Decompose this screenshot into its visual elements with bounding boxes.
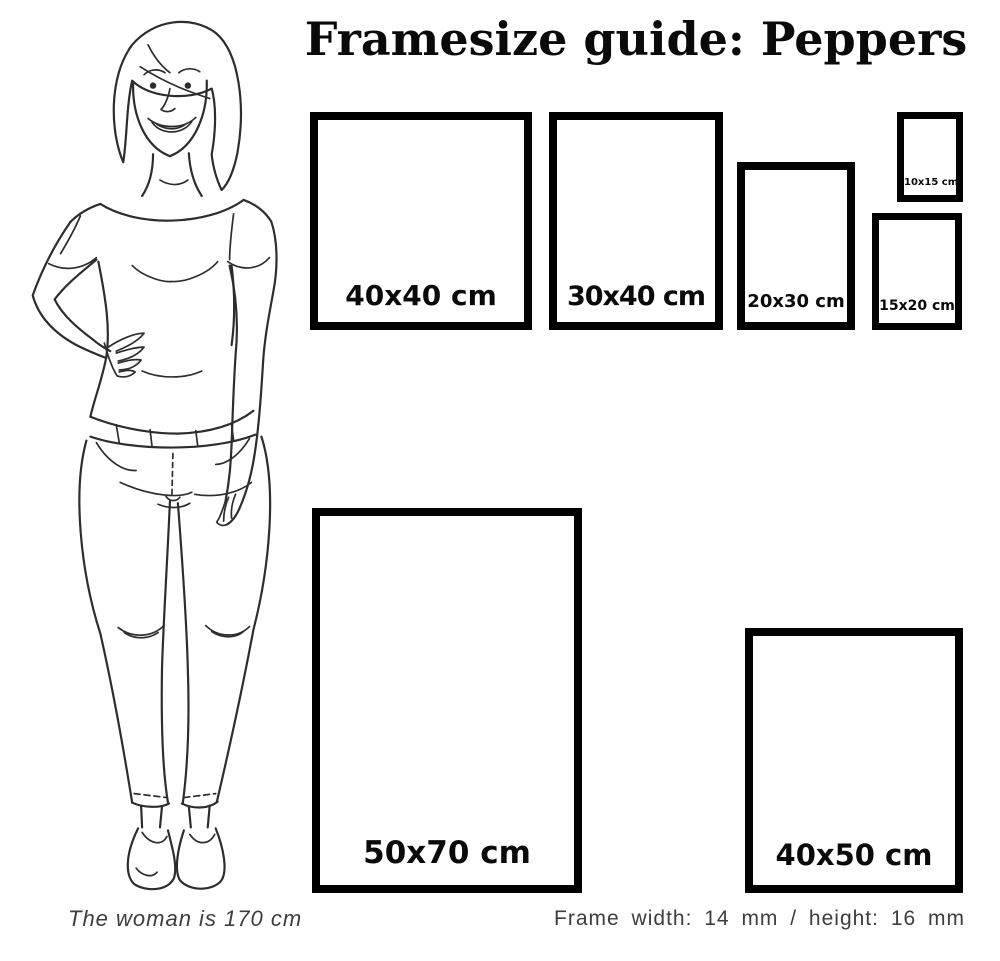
ankle: [141, 806, 142, 828]
collar: [100, 200, 243, 221]
frame-30x40: 30x40 cm: [549, 112, 723, 330]
page-title: Framesize guide: Peppers: [300, 12, 972, 66]
torso-right: [232, 266, 235, 346]
ankle: [189, 807, 191, 828]
frame-label: 15x20 cm: [879, 298, 955, 314]
neck-shadow: [160, 180, 188, 184]
frame-10x15: 10x15 cm: [897, 112, 963, 202]
left-shoe-slit: [136, 868, 157, 875]
caption-woman-height: The woman is 170 cm: [68, 906, 302, 932]
caption-frame-spec: Frame width: 14 mm / height: 16 mm: [554, 907, 965, 931]
belt-loop: [116, 425, 119, 443]
frame-label: 30x40 cm: [557, 281, 715, 312]
left-shoe: [128, 828, 175, 889]
hip-wrinkle: [195, 482, 252, 495]
frame-label: 40x40 cm: [318, 279, 524, 312]
hip-wrinkle: [158, 503, 190, 507]
left-shoulder: [71, 204, 101, 222]
left-eye: [150, 82, 156, 88]
left-cuff: [132, 803, 169, 807]
ankle: [160, 807, 162, 828]
hair: [114, 22, 241, 190]
belly-line: [142, 371, 202, 377]
hand-finger: [108, 333, 144, 351]
hip-wrinkle: [120, 482, 192, 495]
ankle: [208, 806, 210, 828]
left-shoe-opening: [142, 832, 167, 842]
right-knee-slit: [206, 626, 250, 635]
right-sleeve-seam: [230, 214, 234, 260]
hand-finger: [118, 360, 141, 370]
frame-40x50: 40x50 cm: [745, 628, 963, 893]
left-pocket: [96, 443, 136, 471]
left-leg-outer: [79, 441, 132, 803]
right-cuff: [182, 802, 218, 808]
right-cuff-dashed: [184, 794, 216, 798]
frame-label: 50x70 cm: [320, 835, 574, 871]
neck-right: [189, 153, 202, 196]
frame-50x70: 50x70 cm: [312, 508, 582, 893]
framesize-guide: Framesize guide: Peppers: [0, 0, 1000, 961]
bust-line: [132, 262, 218, 282]
frame-40x40: 40x40 cm: [310, 112, 532, 330]
right-leg-outer: [217, 437, 270, 803]
fly-dashed: [172, 454, 173, 495]
woman-illustration: [20, 15, 300, 900]
left-leg-inner: [162, 501, 170, 802]
hand-finger: [117, 370, 135, 376]
fly-bottom: [166, 496, 180, 500]
right-shoulder: [244, 200, 272, 222]
right-shoe: [177, 828, 225, 888]
neck-left: [142, 154, 153, 196]
right-hand-finger: [231, 494, 235, 518]
right-leg-inner: [178, 503, 189, 802]
right-shoe-opening: [190, 834, 215, 842]
frame-15x20: 15x20 cm: [872, 213, 962, 330]
left-cuff-dashed: [134, 794, 167, 798]
tee-hem: [90, 411, 253, 434]
frame-label: 10x15 cm: [904, 177, 956, 188]
frame-label: 20x30 cm: [745, 291, 847, 312]
frame-20x30: 20x30 cm: [737, 162, 855, 330]
left-arm-outer: [33, 222, 107, 358]
right-sleeve-hem: [228, 258, 270, 268]
right-eye: [185, 82, 191, 88]
frame-label: 40x50 cm: [753, 838, 955, 872]
